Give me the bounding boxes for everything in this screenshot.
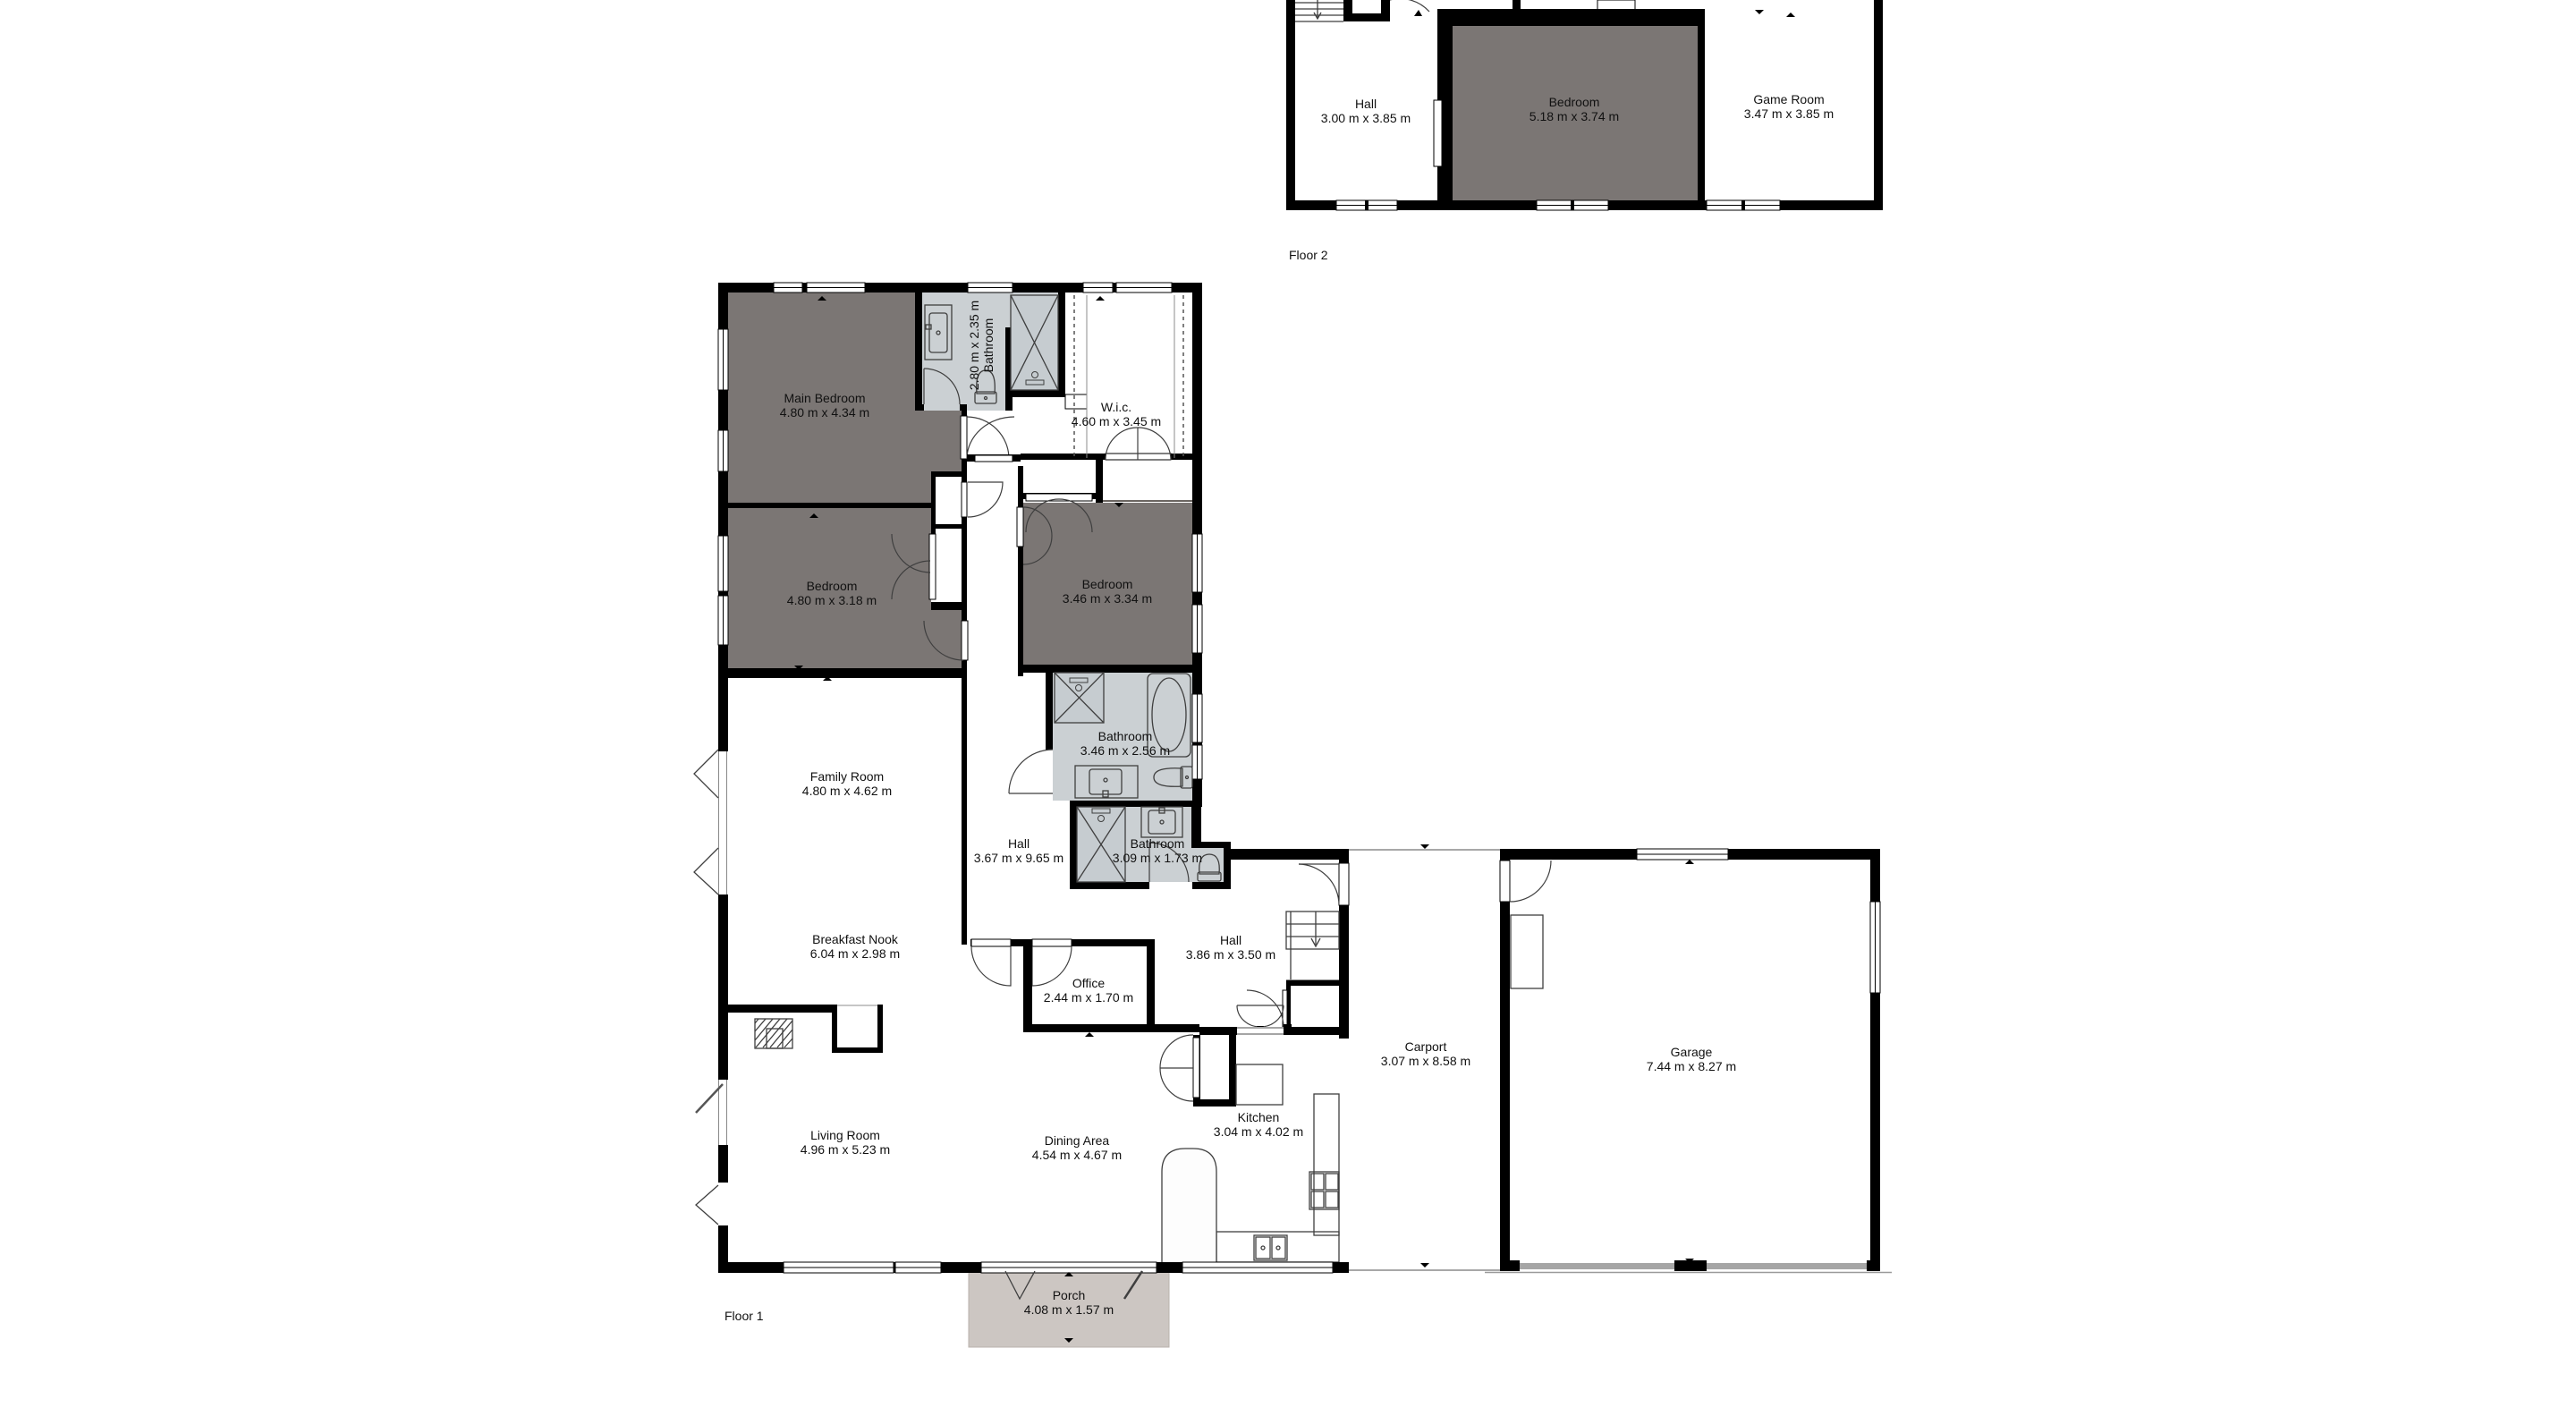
svg-text:Bathroom: Bathroom — [1131, 836, 1185, 851]
svg-text:4.80 m x 4.62 m: 4.80 m x 4.62 m — [802, 784, 892, 798]
svg-text:Floor 1: Floor 1 — [724, 1309, 764, 1323]
svg-text:4.08 m x 1.57 m: 4.08 m x 1.57 m — [1024, 1302, 1114, 1317]
svg-text:4.80 m x 3.18 m: 4.80 m x 3.18 m — [787, 593, 877, 607]
svg-text:2.80 m x 2.35 m: 2.80 m x 2.35 m — [967, 301, 981, 390]
svg-text:Floor 2: Floor 2 — [1289, 248, 1328, 262]
svg-text:Breakfast Nook: Breakfast Nook — [812, 932, 899, 946]
svg-text:Hall: Hall — [1355, 97, 1377, 111]
svg-text:3.00 m x 3.85 m: 3.00 m x 3.85 m — [1321, 111, 1411, 125]
svg-text:3.46 m x 3.34 m: 3.46 m x 3.34 m — [1063, 591, 1152, 606]
svg-text:Carport: Carport — [1405, 1039, 1447, 1054]
svg-text:Living Room: Living Room — [810, 1128, 880, 1142]
svg-text:Office: Office — [1072, 976, 1106, 990]
svg-text:Hall: Hall — [1220, 933, 1241, 947]
svg-text:Main Bedroom: Main Bedroom — [784, 391, 865, 405]
svg-text:3.09 m x 1.73 m: 3.09 m x 1.73 m — [1113, 851, 1202, 865]
svg-text:4.60 m x 3.45 m: 4.60 m x 3.45 m — [1072, 414, 1161, 428]
svg-text:Bathroom: Bathroom — [981, 318, 996, 373]
svg-text:3.04 m x 4.02 m: 3.04 m x 4.02 m — [1214, 1124, 1303, 1139]
svg-text:3.07 m x 8.58 m: 3.07 m x 8.58 m — [1381, 1054, 1470, 1068]
svg-text:Porch: Porch — [1053, 1288, 1086, 1302]
svg-text:Kitchen: Kitchen — [1238, 1110, 1280, 1124]
svg-text:3.47 m x 3.85 m: 3.47 m x 3.85 m — [1744, 106, 1834, 121]
svg-text:Bedroom: Bedroom — [1082, 577, 1133, 591]
svg-text:3.67 m x 9.65 m: 3.67 m x 9.65 m — [974, 851, 1063, 865]
svg-text:Garage: Garage — [1671, 1045, 1713, 1059]
svg-text:4.96 m x 5.23 m: 4.96 m x 5.23 m — [801, 1142, 890, 1157]
svg-text:5.18 m x 3.74 m: 5.18 m x 3.74 m — [1529, 109, 1619, 123]
svg-text:3.86 m x 3.50 m: 3.86 m x 3.50 m — [1186, 947, 1275, 962]
svg-text:4.54 m x 4.67 m: 4.54 m x 4.67 m — [1032, 1148, 1122, 1162]
svg-text:Game Room: Game Room — [1753, 92, 1824, 106]
svg-text:Hall: Hall — [1008, 836, 1030, 851]
svg-text:2.44 m x 1.70 m: 2.44 m x 1.70 m — [1044, 990, 1133, 1005]
svg-text:Bedroom: Bedroom — [1549, 95, 1600, 109]
svg-text:Family Room: Family Room — [810, 769, 884, 784]
svg-text:7.44 m x 8.27 m: 7.44 m x 8.27 m — [1647, 1059, 1736, 1073]
svg-text:Dining Area: Dining Area — [1045, 1133, 1110, 1148]
svg-text:W.i.c.: W.i.c. — [1101, 400, 1131, 414]
svg-text:4.80 m x 4.34 m: 4.80 m x 4.34 m — [780, 405, 869, 420]
svg-text:3.46 m x 2.56 m: 3.46 m x 2.56 m — [1080, 743, 1170, 758]
svg-text:Bedroom: Bedroom — [807, 579, 858, 593]
svg-text:Bathroom: Bathroom — [1098, 729, 1153, 743]
svg-text:6.04 m x 2.98 m: 6.04 m x 2.98 m — [810, 946, 900, 961]
